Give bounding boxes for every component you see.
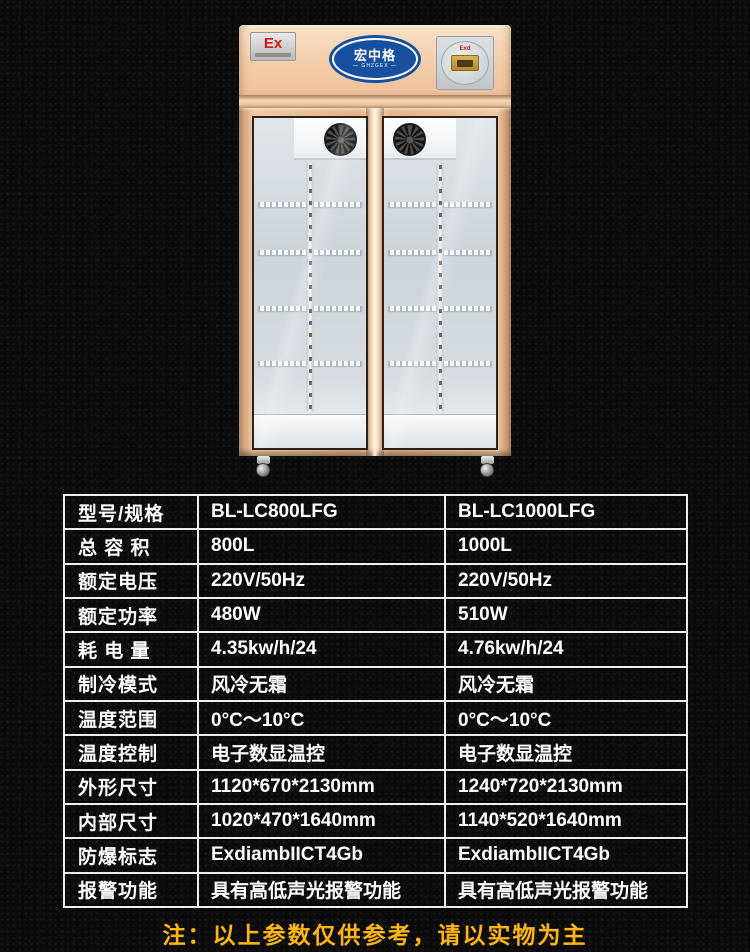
display-screen: [457, 60, 473, 67]
spec-value-model-1000: 4.76kw/h/24: [445, 632, 687, 666]
explosion-proof-controller: Exd: [436, 36, 494, 90]
fan-hub: [336, 135, 345, 144]
spec-value-model-1000: 1240*720*2130mm: [445, 770, 687, 804]
spec-value-model-1000: 电子数显温控: [445, 735, 687, 769]
spec-value-model-800: 风冷无霜: [198, 667, 445, 701]
controller-exd-label: Exd: [442, 46, 488, 52]
spec-value-model-800: ExdiambIICT4Gb: [198, 838, 445, 872]
spec-value-model-800: 800L: [198, 529, 445, 563]
brand-logo: 宏中格 — GHZGEX —: [332, 38, 418, 80]
spec-row: 制冷模式风冷无霜风冷无霜: [64, 667, 687, 701]
spec-value-model-800: 0°C～10°C: [198, 701, 445, 735]
caster-wheel: [254, 456, 272, 478]
spec-label: 型号/规格: [64, 495, 198, 529]
spec-row: 额定功率480W510W: [64, 598, 687, 632]
spec-label: 温度范围: [64, 701, 198, 735]
fan-hub: [405, 135, 414, 144]
caster-wheel: [478, 456, 496, 478]
support-slots: [309, 165, 312, 410]
temperature-display: [451, 55, 479, 71]
spec-value-model-800: 4.35kw/h/24: [198, 632, 445, 666]
spec-value-model-1000: 510W: [445, 598, 687, 632]
brand-name: 宏中格: [354, 49, 396, 63]
spec-label: 制冷模式: [64, 667, 198, 701]
spec-label: 温度控制: [64, 735, 198, 769]
spec-label: 报警功能: [64, 873, 198, 907]
fridge-top-panel: Ex 宏中格 — GHZGEX — Exd: [239, 25, 511, 95]
spec-row: 温度范围0°C～10°C0°C～10°C: [64, 701, 687, 735]
product-image-fridge: Ex 宏中格 — GHZGEX — Exd: [239, 25, 511, 478]
spec-label: 内部尺寸: [64, 804, 198, 838]
spec-label: 耗 电 量: [64, 632, 198, 666]
spec-value-model-1000: 0°C～10°C: [445, 701, 687, 735]
left-door-glass: [252, 116, 368, 450]
spec-row: 内部尺寸1020*470*1640mm1140*520*1640mm: [64, 804, 687, 838]
spec-value-model-1000: 220V/50Hz: [445, 564, 687, 598]
right-evaporator-panel: [384, 118, 456, 160]
spec-value-model-800: 1020*470*1640mm: [198, 804, 445, 838]
spec-value-model-1000: 风冷无霜: [445, 667, 687, 701]
fan-icon: [393, 123, 426, 156]
controller-cover: Exd: [441, 41, 489, 85]
spec-row: 型号/规格BL-LC800LFGBL-LC1000LFG: [64, 495, 687, 529]
bottom-deck: [254, 414, 366, 448]
ex-badge-label: Ex: [264, 36, 282, 51]
left-evaporator-panel: [294, 118, 366, 160]
spec-value-model-800: 1120*670*2130mm: [198, 770, 445, 804]
caster-wheel-circle: [480, 463, 494, 477]
spec-value-model-800: 具有高低声光报警功能: [198, 873, 445, 907]
right-door-glass: [382, 116, 498, 450]
bottom-deck: [384, 414, 496, 448]
shelf-support-column: [437, 163, 444, 412]
spec-value-model-1000: 具有高低声光报警功能: [445, 873, 687, 907]
spec-row: 防爆标志ExdiambIICT4GbExdiambIICT4Gb: [64, 838, 687, 872]
spec-row: 总 容 积800L1000L: [64, 529, 687, 563]
spec-value-model-1000: ExdiambIICT4Gb: [445, 838, 687, 872]
spec-label: 外形尺寸: [64, 770, 198, 804]
spec-label: 防爆标志: [64, 838, 198, 872]
spec-row: 耗 电 量4.35kw/h/244.76kw/h/24: [64, 632, 687, 666]
spec-table-body: 型号/规格BL-LC800LFGBL-LC1000LFG总 容 积800L100…: [64, 495, 687, 907]
spec-row: 报警功能具有高低声光报警功能具有高低声光报警功能: [64, 873, 687, 907]
fan-icon: [324, 123, 357, 156]
footer-note: 注：以上参数仅供参考，请以实物为主: [0, 916, 750, 950]
spec-value-model-1000: 1000L: [445, 529, 687, 563]
spec-value-model-800: 220V/50Hz: [198, 564, 445, 598]
spec-row: 外形尺寸1120*670*2130mm1240*720*2130mm: [64, 770, 687, 804]
spec-row: 额定电压220V/50Hz220V/50Hz: [64, 564, 687, 598]
spec-value-model-800: 480W: [198, 598, 445, 632]
page-background: Ex 宏中格 — GHZGEX — Exd: [0, 0, 750, 952]
support-slots: [439, 165, 442, 410]
ex-badge-microtext: [255, 53, 291, 57]
spec-label: 总 容 积: [64, 529, 198, 563]
fridge-divider-strip: [239, 95, 511, 108]
spec-label: 额定功率: [64, 598, 198, 632]
spec-label: 额定电压: [64, 564, 198, 598]
caster-wheel-circle: [256, 463, 270, 477]
shelf-support-column: [307, 163, 314, 412]
spec-value-model-800: BL-LC800LFG: [198, 495, 445, 529]
fridge-doors: [239, 108, 511, 456]
ex-certification-badge: Ex: [250, 32, 296, 61]
spec-value-model-1000: 1140*520*1640mm: [445, 804, 687, 838]
fridge-base: [239, 456, 511, 478]
spec-value-model-800: 电子数显温控: [198, 735, 445, 769]
spec-table: 型号/规格BL-LC800LFGBL-LC1000LFG总 容 积800L100…: [63, 494, 688, 908]
brand-subtitle: — GHZGEX —: [353, 64, 397, 69]
spec-row: 温度控制电子数显温控电子数显温控: [64, 735, 687, 769]
spec-value-model-1000: BL-LC1000LFG: [445, 495, 687, 529]
